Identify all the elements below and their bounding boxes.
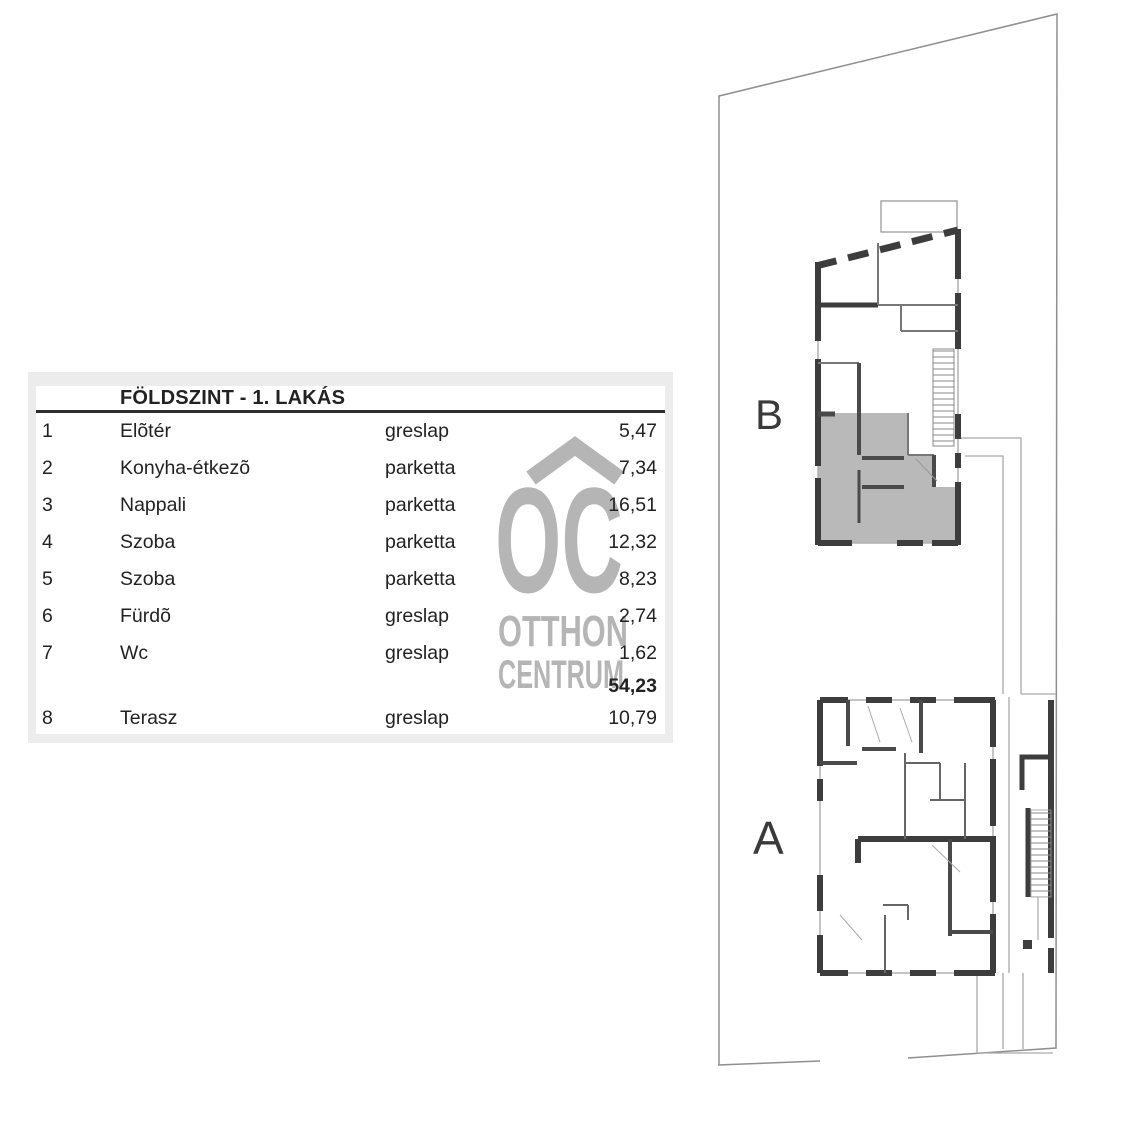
room-floor: parketta bbox=[385, 524, 455, 561]
row-number: 7 bbox=[42, 635, 53, 672]
row-number: 4 bbox=[42, 524, 53, 561]
room-name: Szoba bbox=[120, 524, 175, 561]
room-name: Szoba bbox=[120, 561, 175, 598]
room-floor: greslap bbox=[385, 700, 449, 737]
table-row: 5 Szoba parketta 8,23 bbox=[36, 561, 665, 598]
walkway-lines bbox=[958, 438, 1056, 1053]
room-name: Konyha-étkezõ bbox=[120, 450, 250, 487]
room-name: Nappali bbox=[120, 487, 186, 524]
row-number: 8 bbox=[42, 700, 53, 737]
room-name: Terasz bbox=[120, 700, 177, 737]
building-b-label: B bbox=[755, 391, 783, 438]
building-a: A bbox=[753, 700, 1051, 973]
room-area: 1,62 bbox=[619, 635, 657, 672]
room-area: 2,74 bbox=[619, 598, 657, 635]
room-floor: greslap bbox=[385, 413, 449, 450]
total-area: 54,23 bbox=[608, 672, 657, 700]
room-table: FÖLDSZINT - 1. LAKÁS 1 Elõtér greslap 5,… bbox=[36, 386, 665, 737]
table-row: 7 Wc greslap 1,62 bbox=[36, 635, 665, 672]
room-area: 10,79 bbox=[608, 700, 657, 737]
room-area: 12,32 bbox=[608, 524, 657, 561]
dashed-wall bbox=[816, 230, 958, 266]
room-name: Fürdõ bbox=[120, 598, 171, 635]
room-floor: greslap bbox=[385, 598, 449, 635]
room-area: 5,47 bbox=[619, 413, 657, 450]
table-title: FÖLDSZINT - 1. LAKÁS bbox=[36, 386, 665, 413]
room-floor: parketta bbox=[385, 561, 455, 598]
room-name: Wc bbox=[120, 635, 148, 672]
table-row: 6 Fürdõ greslap 2,74 bbox=[36, 598, 665, 635]
total-row: 54,23 bbox=[36, 672, 665, 700]
room-area: 8,23 bbox=[619, 561, 657, 598]
floorplan-page: { "table": { "title": "FÖLDSZINT - 1. LA… bbox=[0, 0, 1124, 1128]
room-name: Elõtér bbox=[120, 413, 171, 450]
row-number: 3 bbox=[42, 487, 53, 524]
staircase-a-icon bbox=[1022, 700, 1051, 973]
room-area: 7,34 bbox=[619, 450, 657, 487]
building-b: B bbox=[755, 201, 958, 545]
row-number: 6 bbox=[42, 598, 53, 635]
table-row: 4 Szoba parketta 12,32 bbox=[36, 524, 665, 561]
row-number: 2 bbox=[42, 450, 53, 487]
room-floor: greslap bbox=[385, 635, 449, 672]
row-number: 1 bbox=[42, 413, 53, 450]
building-a-label: A bbox=[753, 812, 784, 864]
room-floor: parketta bbox=[385, 487, 455, 524]
row-number: 5 bbox=[42, 561, 53, 598]
room-floor: parketta bbox=[385, 450, 455, 487]
room-area: 16,51 bbox=[608, 487, 657, 524]
balcony-outline bbox=[881, 201, 957, 232]
staircase-b-icon bbox=[933, 349, 954, 446]
table-row: 2 Konyha-étkezõ parketta 7,34 bbox=[36, 450, 665, 487]
table-row-terrace: 8 Terasz greslap 10,79 bbox=[36, 700, 665, 737]
table-row: 3 Nappali parketta 16,51 bbox=[36, 487, 665, 524]
table-row: 1 Elõtér greslap 5,47 bbox=[36, 413, 665, 450]
